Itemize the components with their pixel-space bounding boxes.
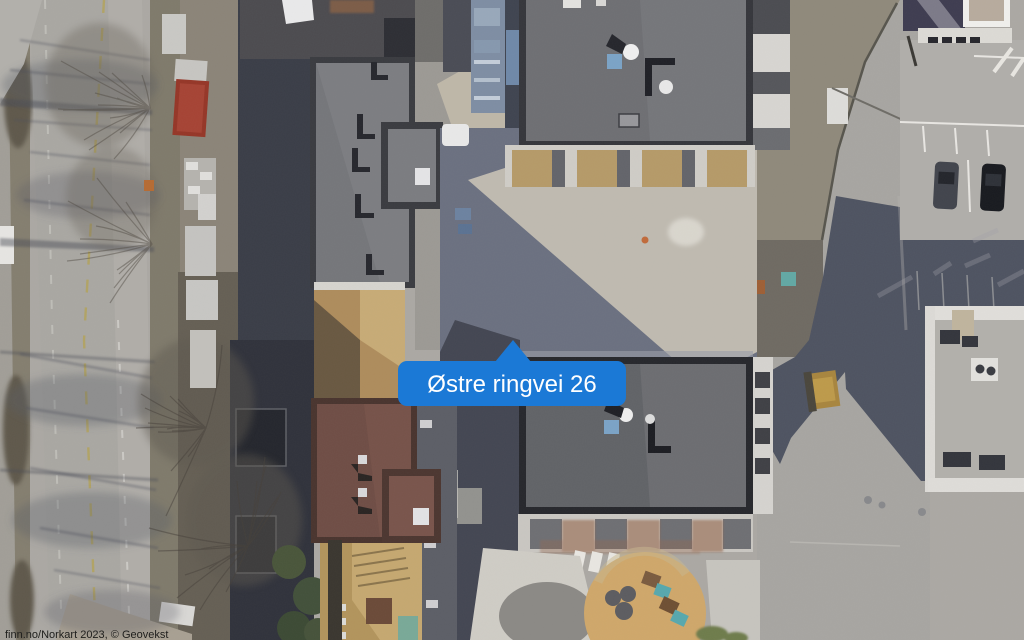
svg-text:Østre ringvei 26: Østre ringvei 26 (427, 371, 596, 398)
svg-text:finn.no/Norkart 2023, © Geovek: finn.no/Norkart 2023, © Geovekst (5, 629, 168, 640)
